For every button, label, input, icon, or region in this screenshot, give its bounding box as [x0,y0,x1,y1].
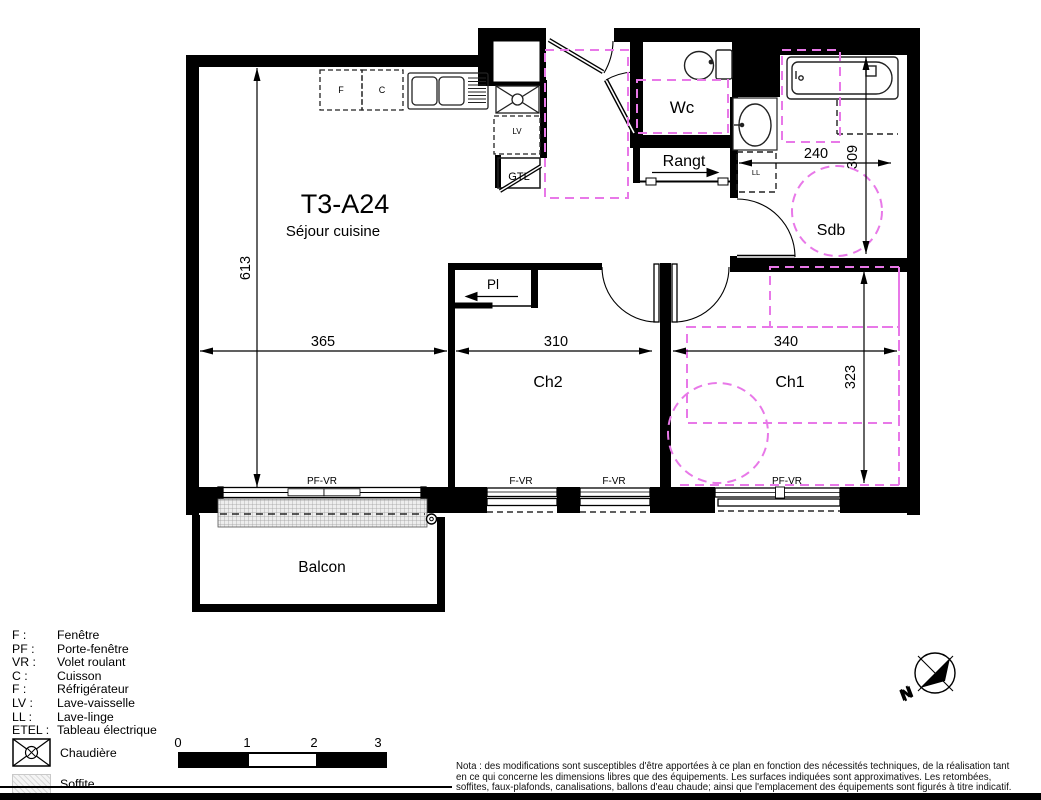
equip-label-fridge: F [338,85,344,95]
legend-abbr: C : [12,670,57,684]
sdb-door [737,199,795,257]
ch2-door [602,264,659,322]
washbasin [733,98,777,150]
legend: F : Fenêtre PF : Porte-fenêtre VR : Vole… [12,629,157,738]
windows [218,487,840,527]
legend-label: Lave-vaisselle [57,697,135,711]
pl-sliding-door [452,303,531,308]
legend-abbr: LV : [12,697,57,711]
nota-text: Nota : des modifications sont susceptibl… [456,762,1038,794]
legend-row-cuisson: C : Cuisson [12,670,157,684]
ch1-door [672,264,729,322]
scale-segment-black [316,754,385,766]
equip-label-gtl: GTL [508,171,529,183]
window-label-ch1: PF-VR [772,476,802,487]
room-label-pl: Pl [487,277,499,292]
room-label-ch1: Ch1 [775,374,804,391]
dim-sejour-height: 613 [238,256,254,280]
legend-label: Tableau électrique [57,724,157,738]
legend-chaudiere-label: Chaudière [60,746,117,760]
dim-ch1-width: 340 [774,334,798,350]
equip-label-cooktop: C [379,85,386,95]
dim-sejour-width: 365 [311,334,335,350]
nota-line-1: Nota : des modifications sont susceptibl… [456,762,1038,773]
legend-row-lave-linge: LL : Lave-linge [12,711,157,725]
kitchen-fixtures [320,70,540,188]
legend-row-tableau-electrique: ETEL : Tableau électrique [12,724,157,738]
scale-tick-2: 2 [310,735,317,750]
room-label-sdb: Sdb [817,222,846,239]
room-label-balcon: Balcon [298,559,345,576]
legend-label: Réfrigérateur [57,683,129,697]
room-label-ch2: Ch2 [533,374,562,391]
scale-tick-3: 3 [374,735,381,750]
legend-label: Cuisson [57,670,101,684]
equip-label-dishwasher: LV [512,127,522,136]
dim-ch2-width: 310 [544,334,568,350]
legend-row-fenetre: F : Fenêtre [12,629,157,643]
equip-label-washer: LL [752,168,760,177]
scale-bar-segments [178,752,387,768]
legend-row-porte-fenetre: PF : Porte-fenêtre [12,643,157,657]
entrance-door [549,40,613,73]
window-label-sejour: PF-VR [307,476,337,487]
scale-tick-1: 1 [243,735,250,750]
legend-label: Volet roulant [57,656,125,670]
legend-abbr: F : [12,629,57,643]
page-frame-line [0,786,452,788]
compass-north: N N [896,653,955,705]
legend-row-refrigerateur: F : Réfrigérateur [12,683,157,697]
toilet [685,50,733,80]
window-label-ch2-a: F-VR [509,476,532,487]
boiler-legend-icon [12,738,51,767]
legend-row-lave-vaisselle: LV : Lave-vaisselle [12,697,157,711]
soffite-legend-icon [12,774,51,794]
legend-icons: Chaudière Soffite [12,738,117,800]
bathtub [787,57,898,99]
legend-abbr: LL : [12,711,57,725]
scale-segment-white [249,754,316,766]
dim-sdb-height: 309 [845,145,861,169]
legend-abbr: F : [12,683,57,697]
legend-label: Porte-fenêtre [57,643,129,657]
dim-sdb-width: 240 [804,146,828,162]
wc-door [606,72,634,133]
room-label-rangt: Rangt [663,153,706,170]
floorplan-page: 613 365 310 340 240 309 323 T3-A24 Séjou… [0,0,1041,800]
legend-label: Lave-linge [57,711,114,725]
boiler-icon [496,86,539,113]
legend-abbr: ETEL : [12,724,57,738]
legend-row-chaudiere: Chaudière [12,738,117,767]
legend-soffite-label: Soffite [60,777,95,791]
legend-abbr: VR : [12,656,57,670]
legend-label: Fenêtre [57,629,99,643]
duct-shaft-entry [493,41,540,82]
plan-title: T3-A24 [301,189,390,219]
dim-ch1-height: 323 [843,365,859,389]
legend-abbr: PF : [12,643,57,657]
room-label-wc: Wc [670,98,695,117]
kitchen-sink [408,73,488,109]
scale-segment-black [180,754,249,766]
legend-row-volet-roulant: VR : Volet roulant [12,656,157,670]
scale-bar: 0 1 2 3 [178,735,388,769]
rangt-sliding-door [640,178,732,185]
window-label-ch2-b: F-VR [602,476,625,487]
page-frame-bottom [0,793,1041,800]
plan-subtitle: Séjour cuisine [286,223,380,240]
scale-tick-0: 0 [174,735,181,750]
legend-row-soffite: Soffite [12,774,117,794]
